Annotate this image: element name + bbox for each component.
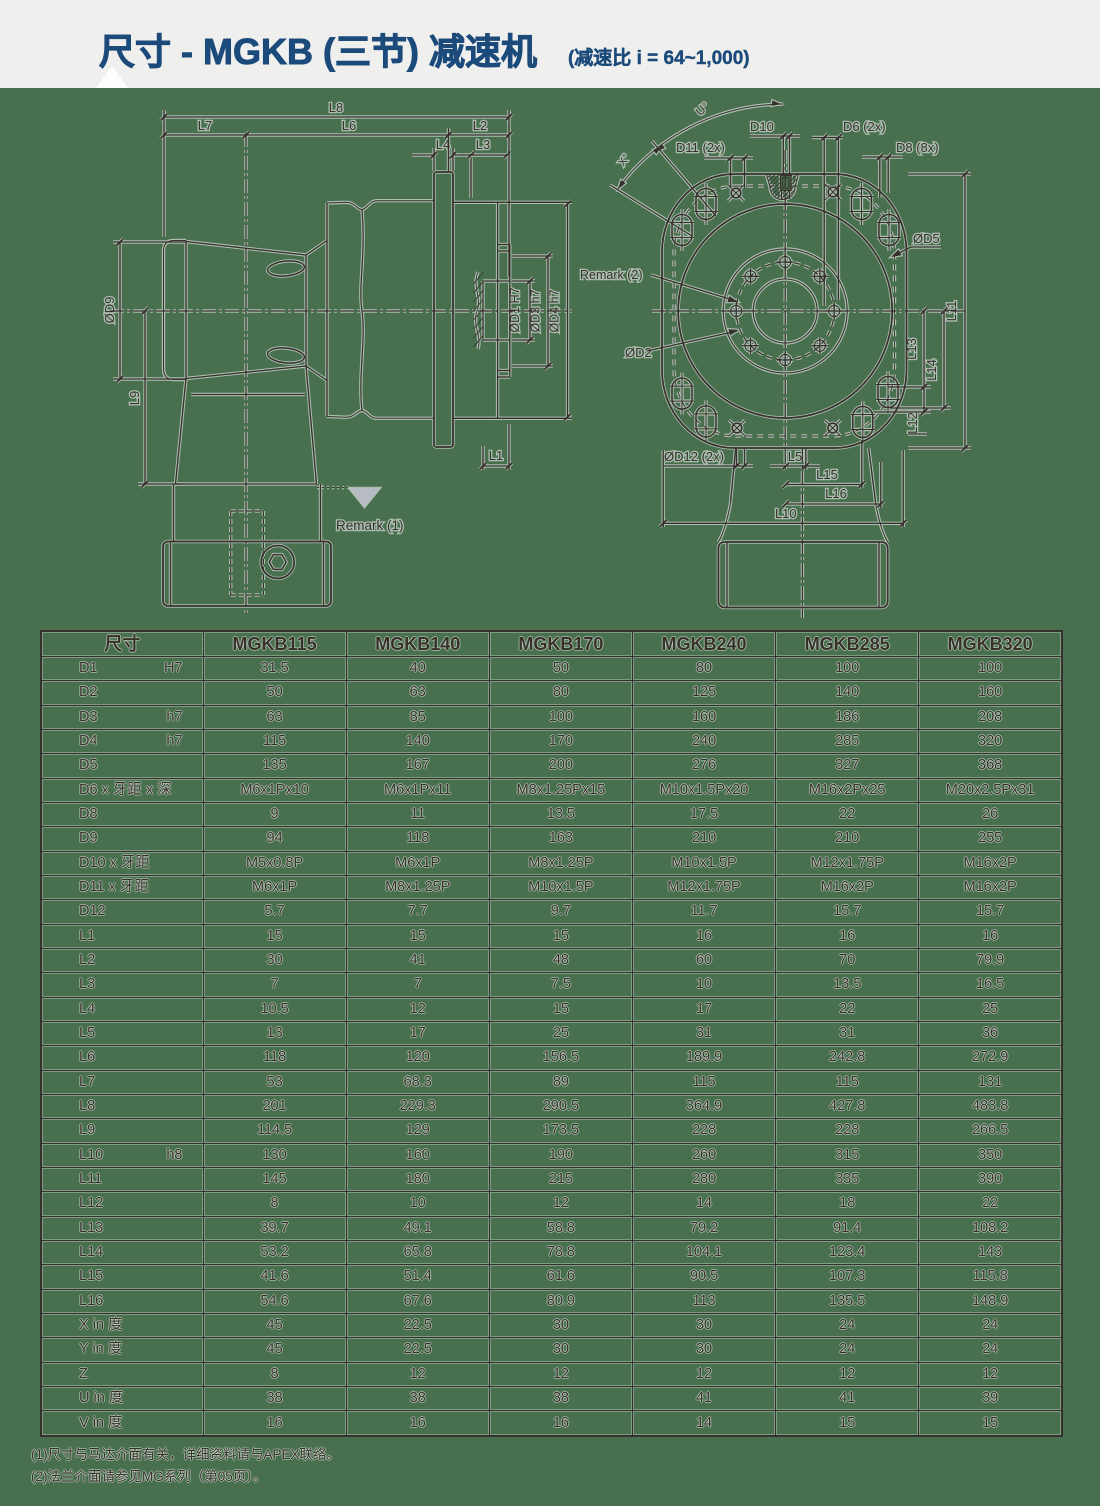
svg-text:L4: L4 <box>436 137 450 152</box>
svg-text:L6: L6 <box>342 118 356 133</box>
svg-text:ØD3 h7: ØD3 h7 <box>529 289 543 332</box>
svg-text:Remark (1): Remark (1) <box>336 518 404 533</box>
svg-text:L11: L11 <box>944 301 959 322</box>
svg-text:L13: L13 <box>904 338 919 360</box>
svg-text:L12: L12 <box>905 412 920 434</box>
svg-text:ØD12 (2x): ØD12 (2x) <box>664 449 724 464</box>
svg-text:L9: L9 <box>127 391 142 405</box>
svg-text:U°: U° <box>693 99 712 119</box>
svg-text:L7: L7 <box>198 118 212 133</box>
svg-text:D8 (8x): D8 (8x) <box>896 140 939 155</box>
svg-text:L15: L15 <box>816 467 838 482</box>
svg-text:L2: L2 <box>473 118 487 133</box>
svg-text:L5: L5 <box>788 449 802 464</box>
svg-text:L16: L16 <box>825 486 847 501</box>
svg-text:X°: X° <box>616 152 633 169</box>
svg-text:D11 (2x): D11 (2x) <box>676 140 725 155</box>
svg-text:L10: L10 <box>775 506 797 521</box>
svg-text:Remark (2): Remark (2) <box>580 268 643 282</box>
svg-text:L14: L14 <box>924 359 939 381</box>
svg-text:L3: L3 <box>476 137 490 152</box>
svg-text:ØD9: ØD9 <box>102 297 117 324</box>
svg-text:L8: L8 <box>329 100 343 115</box>
svg-text:ØD2: ØD2 <box>625 345 652 360</box>
svg-text:D6 (2x): D6 (2x) <box>843 119 886 134</box>
svg-text:D10: D10 <box>750 119 774 134</box>
svg-text:ØD1 H7: ØD1 H7 <box>508 287 522 332</box>
svg-text:L1: L1 <box>489 448 503 463</box>
svg-text:ØD5: ØD5 <box>913 231 940 246</box>
svg-text:ØD4 h7: ØD4 h7 <box>548 289 562 332</box>
